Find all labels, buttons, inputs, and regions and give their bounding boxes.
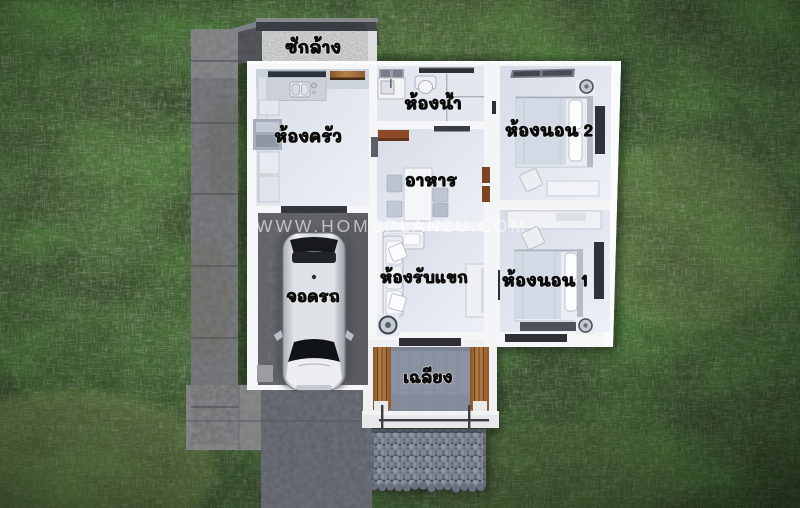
svg-text:WWW.HOMEPLAN2U.COM: WWW.HOMEPLAN2U.COM [256,216,528,236]
